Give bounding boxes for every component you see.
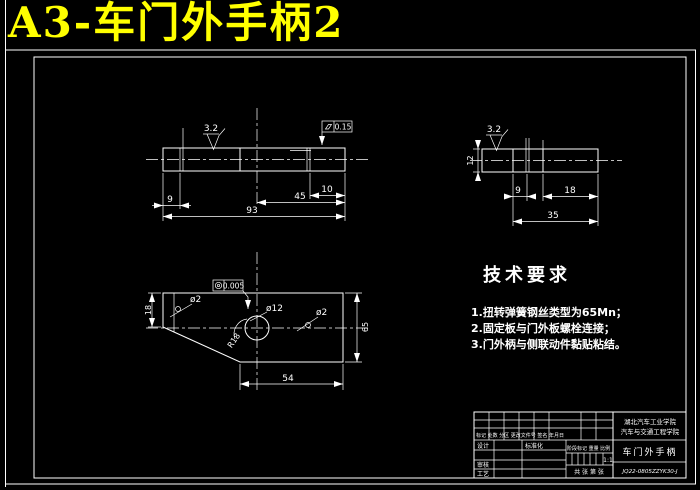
tech-requirement-item: 2.固定板与门外板螺栓连接； bbox=[471, 321, 615, 335]
roughness-value: 3.2 bbox=[487, 125, 501, 135]
dim-10: 10 bbox=[321, 185, 333, 195]
dim-54: 54 bbox=[282, 374, 294, 384]
check-label: 审核 bbox=[477, 461, 489, 469]
page-title: A3-车门外手柄2 bbox=[7, 0, 344, 47]
title-bar: A3-车门外手柄2 bbox=[7, 0, 344, 47]
revision-header: 标记 处数 分区 更改文件号 签名 年月日 bbox=[476, 432, 564, 439]
dim-18: 18 bbox=[144, 305, 153, 315]
sheet-count: 共 张 第 张 bbox=[574, 468, 604, 476]
dim-65: 65 bbox=[361, 322, 370, 332]
tech-requirement-item: 1.扭转弹簧钢丝类型为65Mn； bbox=[471, 305, 627, 319]
tech-requirements-heading: 技术要求 bbox=[483, 264, 571, 286]
dim-12: 12 bbox=[466, 155, 475, 165]
scale-value: 1:1 bbox=[603, 457, 613, 464]
dim-93: 93 bbox=[246, 206, 257, 216]
standardization-label: 标准化 bbox=[525, 442, 543, 450]
process-label: 工艺 bbox=[477, 470, 489, 478]
cad-drawing-screenshot: A3-车门外手柄2 3.2 0.15 bbox=[0, 0, 700, 490]
tolerance-value: 0.005 bbox=[223, 282, 245, 291]
dim-9: 9 bbox=[515, 186, 521, 196]
drawing-number: JQ22-0805ZZYK30-J bbox=[622, 469, 678, 475]
dim-35: 35 bbox=[547, 211, 558, 221]
dim-9: 9 bbox=[167, 195, 173, 205]
label-phi12: ø12 bbox=[266, 304, 283, 314]
part-name: 车门外手柄 bbox=[622, 446, 677, 458]
roughness-value: 3.2 bbox=[204, 124, 218, 134]
institution-line2: 汽车与交通工程学院 bbox=[621, 427, 680, 436]
tolerance-value: 0.15 bbox=[335, 123, 352, 132]
label-phi2-right: ø2 bbox=[316, 308, 327, 318]
drawing-background bbox=[0, 0, 700, 490]
cad-drawing-canvas: A3-车门外手柄2 3.2 0.15 bbox=[0, 0, 700, 490]
label-phi2-left: ø2 bbox=[190, 295, 201, 305]
dim-18: 18 bbox=[564, 186, 576, 196]
stage-header: 阶段标记 重量 比例 bbox=[567, 445, 610, 452]
tech-requirement-item: 3.门外柄与侧联动件黏贴粘结。 bbox=[471, 337, 626, 351]
dim-45: 45 bbox=[294, 192, 305, 202]
institution-line1: 湖北汽车工业学院 bbox=[624, 417, 677, 426]
design-label: 设计 bbox=[477, 442, 489, 450]
